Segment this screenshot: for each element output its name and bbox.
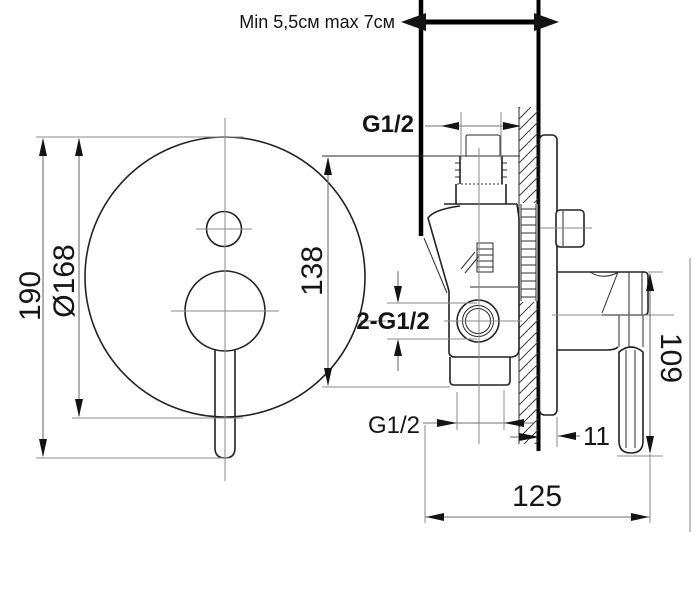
arrow-left-icon — [426, 513, 444, 521]
arrow-right-icon — [437, 419, 457, 427]
dim-g12-bottom: G1/2 — [368, 390, 533, 439]
dim-109-text: 109 — [654, 333, 687, 383]
faceplate-side — [540, 135, 558, 415]
arrow-left-icon — [558, 432, 576, 440]
wall-section — [519, 107, 538, 444]
g12-mid-text: 2-G1/2 — [356, 308, 429, 335]
arrow-up-icon — [324, 157, 332, 175]
arrow-down-icon — [75, 399, 83, 417]
arrow-down-icon — [39, 439, 47, 457]
arrow-up-icon — [394, 339, 402, 356]
g12-top-text: G1/2 — [362, 111, 414, 138]
arrow-right-icon — [503, 122, 521, 130]
union-thread-ticks — [455, 163, 507, 177]
lever-arm-outline — [557, 272, 648, 315]
arm-taper — [602, 272, 618, 313]
side-view-trim — [540, 135, 675, 453]
thread-body — [520, 204, 538, 301]
base-bottom — [557, 347, 618, 350]
dim-190-text: 190 — [14, 271, 47, 321]
dim-125-text: 125 — [512, 480, 562, 513]
arrow-down-icon — [646, 436, 654, 454]
dim-138: 138 — [296, 157, 450, 387]
bottom-outlet-pipe — [449, 353, 512, 385]
arrow-right-icon — [631, 513, 649, 521]
dim-168-text: Ø168 — [48, 244, 81, 317]
body-left-shoulder — [428, 206, 460, 291]
depth-note-text: Min 5,5см max 7см — [239, 12, 395, 32]
drawing-canvas: 190 Ø168 138 Min 5,5см max 7см — [0, 0, 695, 604]
front-dimensions: 190 Ø168 138 — [14, 137, 450, 458]
wall-depth-indicator: Min 5,5см max 7см — [239, 0, 559, 451]
wall-feedthrough-thread — [520, 204, 538, 301]
dim-138-text: 138 — [296, 246, 329, 296]
arrow-up-icon — [75, 138, 83, 156]
union-nut — [444, 156, 517, 204]
cartridge-set-screw — [461, 243, 493, 273]
dim-190: 190 — [14, 138, 47, 457]
arrow-right-icon — [534, 13, 559, 31]
mixer-technical-drawing: 190 Ø168 138 Min 5,5см max 7см — [0, 0, 695, 604]
arrow-left-icon — [504, 419, 524, 427]
dim-11-text: 11 — [583, 421, 610, 451]
wall-hatch-upper — [519, 107, 538, 203]
arrow-left-icon — [401, 13, 426, 31]
arrow-down-icon — [394, 286, 402, 303]
dim-109: 109 — [617, 272, 687, 456]
g12-bottom-text: G1/2 — [368, 412, 420, 439]
arrow-up-icon — [39, 138, 47, 156]
arrow-left-icon — [441, 122, 459, 130]
pipe-stub — [466, 135, 500, 156]
front-view — [85, 118, 365, 481]
arrow-down-icon — [324, 368, 332, 386]
body-right-edge — [512, 204, 519, 357]
grip-side — [619, 347, 643, 453]
dim-168: Ø168 — [48, 138, 83, 417]
